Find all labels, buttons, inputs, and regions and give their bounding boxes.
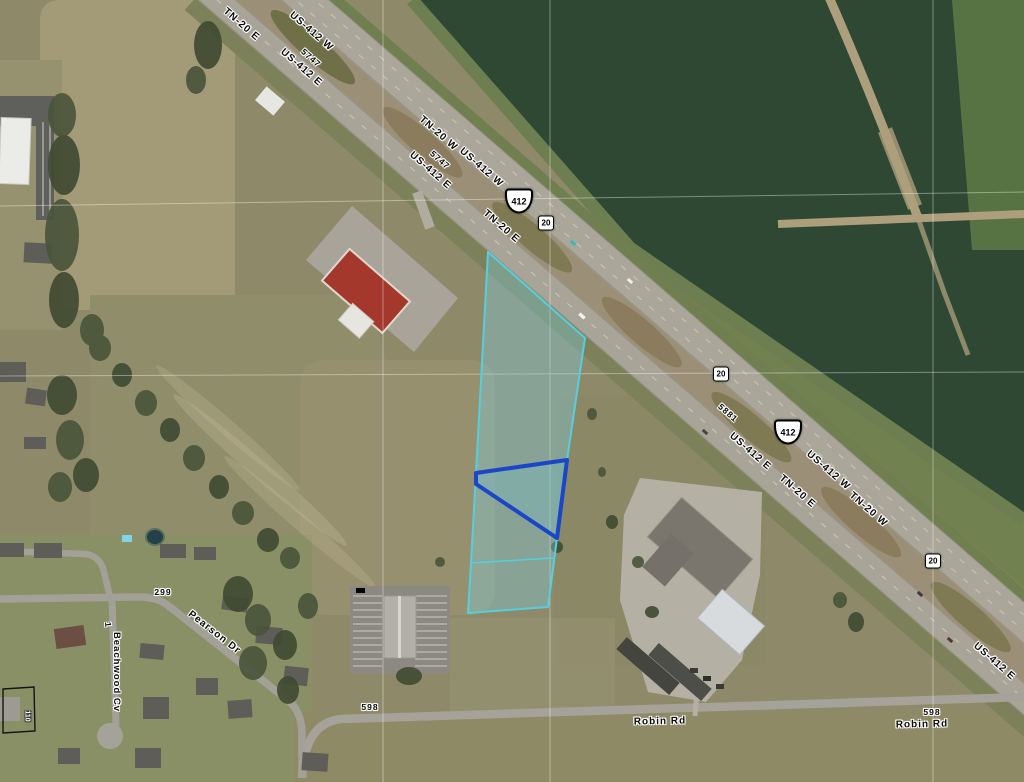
- map-canvas[interactable]: TN-20 EUS-412 W5747US-412 ETN-20 WUS-412…: [0, 0, 1024, 782]
- office-building: [384, 596, 416, 658]
- pool: [122, 535, 132, 542]
- white-building: [0, 117, 31, 184]
- aerial-imagery: [0, 0, 1024, 782]
